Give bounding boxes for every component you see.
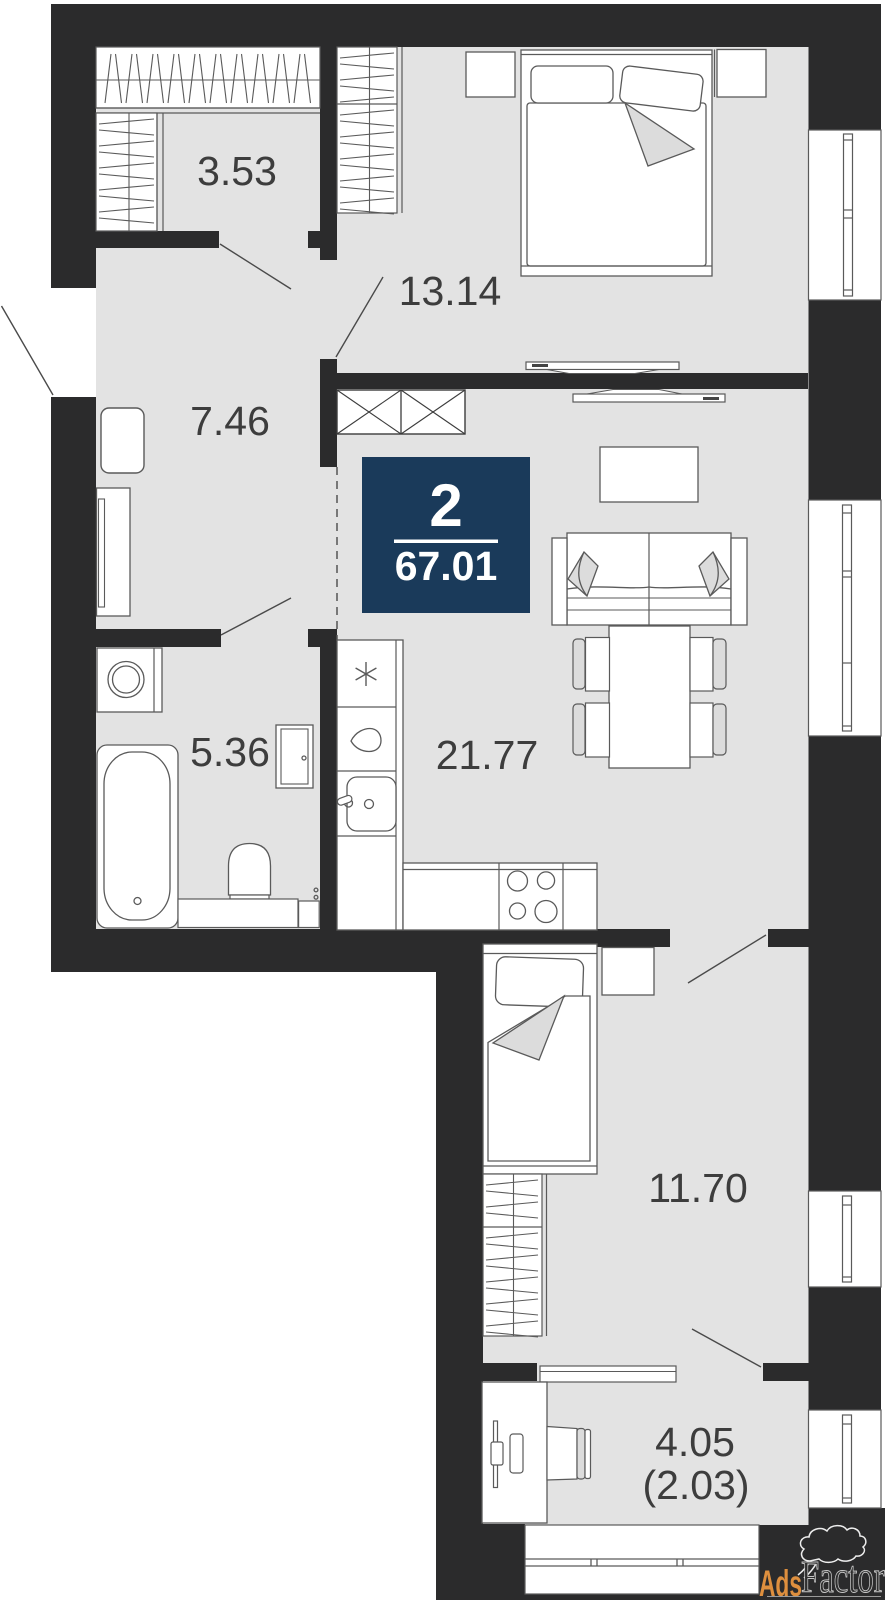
- svg-text:13.14: 13.14: [399, 268, 502, 314]
- svg-text:11.70: 11.70: [648, 1165, 748, 1211]
- svg-text:5.36: 5.36: [190, 729, 270, 775]
- svg-text:67.01: 67.01: [395, 543, 498, 589]
- svg-text:Ads: Ads: [759, 1563, 802, 1600]
- svg-text:Factory: Factory: [801, 1551, 885, 1600]
- svg-text:21.77: 21.77: [436, 732, 539, 778]
- svg-text:7.46: 7.46: [190, 398, 270, 444]
- svg-text:2: 2: [429, 472, 462, 539]
- svg-text:3.53: 3.53: [197, 148, 277, 194]
- svg-text:4.05: 4.05: [655, 1419, 735, 1465]
- svg-text:(2.03): (2.03): [642, 1462, 749, 1508]
